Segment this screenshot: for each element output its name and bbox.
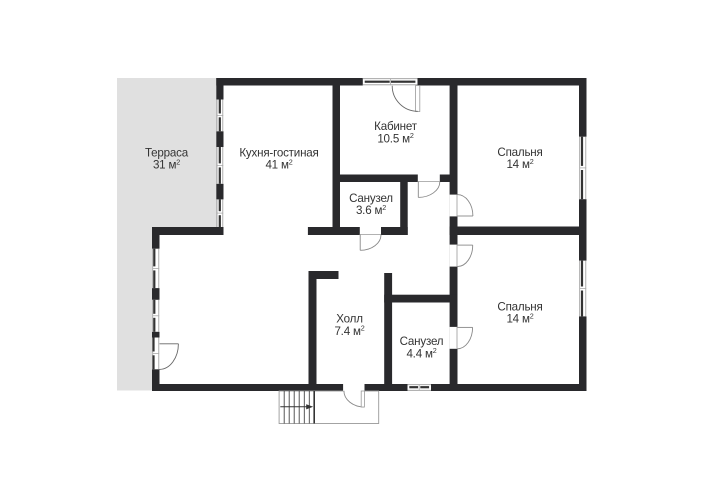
- svg-text:10.5 м2: 10.5 м2: [377, 131, 414, 145]
- svg-text:14 м2: 14 м2: [506, 311, 533, 325]
- svg-text:Спальня: Спальня: [497, 146, 542, 159]
- svg-text:4.4 м2: 4.4 м2: [406, 346, 436, 360]
- svg-text:41 м2: 41 м2: [265, 157, 292, 171]
- svg-text:Санузел: Санузел: [400, 335, 444, 348]
- svg-text:Санузел: Санузел: [349, 192, 393, 205]
- svg-text:Кухня-гостиная: Кухня-гостиная: [239, 146, 318, 159]
- svg-text:3.6 м2: 3.6 м2: [356, 203, 386, 217]
- svg-text:31 м2: 31 м2: [153, 157, 180, 171]
- svg-text:7.4 м2: 7.4 м2: [334, 324, 364, 338]
- svg-text:Спальня: Спальня: [497, 300, 542, 313]
- svg-text:Терраса: Терраса: [145, 146, 189, 159]
- svg-text:14 м2: 14 м2: [506, 157, 533, 171]
- svg-text:Холл: Холл: [336, 313, 363, 326]
